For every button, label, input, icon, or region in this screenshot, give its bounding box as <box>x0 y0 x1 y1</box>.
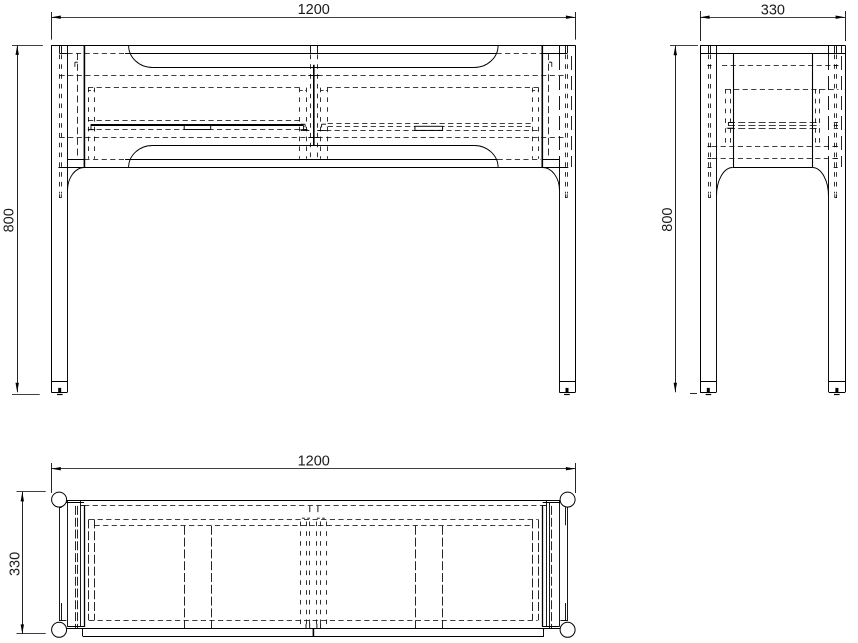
svg-text:800: 800 <box>2 208 18 232</box>
svg-text:800: 800 <box>660 207 676 231</box>
svg-text:1200: 1200 <box>298 454 330 470</box>
svg-text:330: 330 <box>761 2 785 18</box>
svg-text:330: 330 <box>8 552 24 576</box>
svg-text:1200: 1200 <box>298 2 330 18</box>
